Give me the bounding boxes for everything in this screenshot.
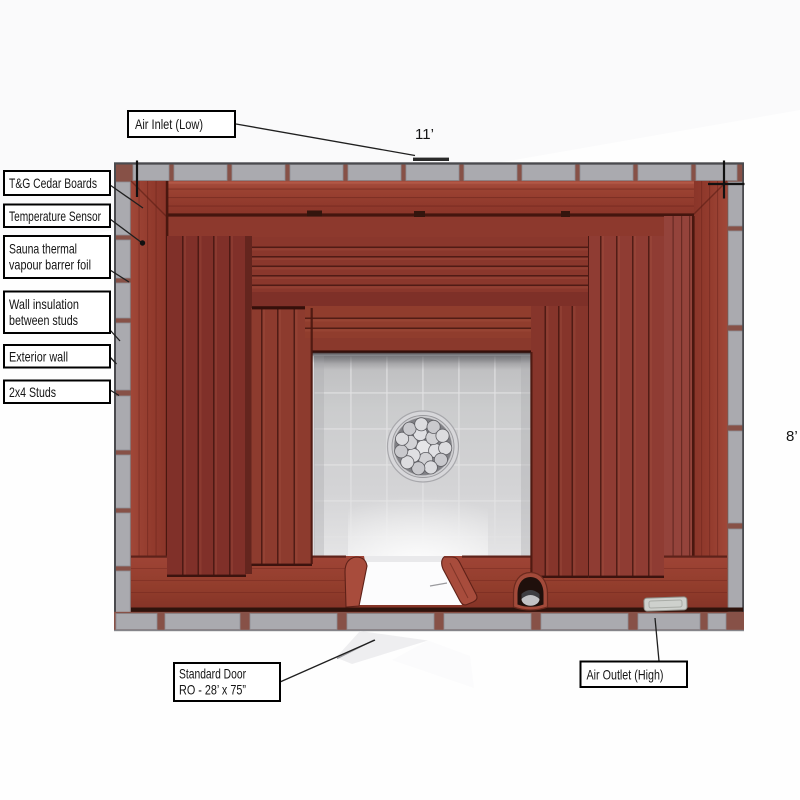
svg-text:Temperature Sensor: Temperature Sensor	[9, 208, 101, 224]
svg-text:8’: 8’	[786, 428, 798, 445]
svg-text:Standard Door: Standard Door	[179, 666, 246, 682]
svg-text:vapour barrer foil: vapour barrer foil	[9, 257, 91, 273]
svg-text:Wall insulation: Wall insulation	[9, 296, 79, 312]
svg-text:Air Inlet (Low): Air Inlet (Low)	[135, 116, 203, 132]
svg-text:RO - 28’ x 75”: RO - 28’ x 75”	[179, 682, 246, 698]
svg-text:Exterior wall: Exterior wall	[9, 348, 68, 364]
svg-text:between studs: between studs	[9, 312, 78, 328]
svg-text:Sauna thermal: Sauna thermal	[9, 241, 77, 257]
svg-text:Air Outlet (High): Air Outlet (High)	[587, 666, 664, 682]
svg-text:11’: 11’	[415, 126, 434, 143]
svg-text:T&G Cedar Boards: T&G Cedar Boards	[9, 175, 97, 191]
svg-text:2x4 Studs: 2x4 Studs	[9, 384, 56, 400]
